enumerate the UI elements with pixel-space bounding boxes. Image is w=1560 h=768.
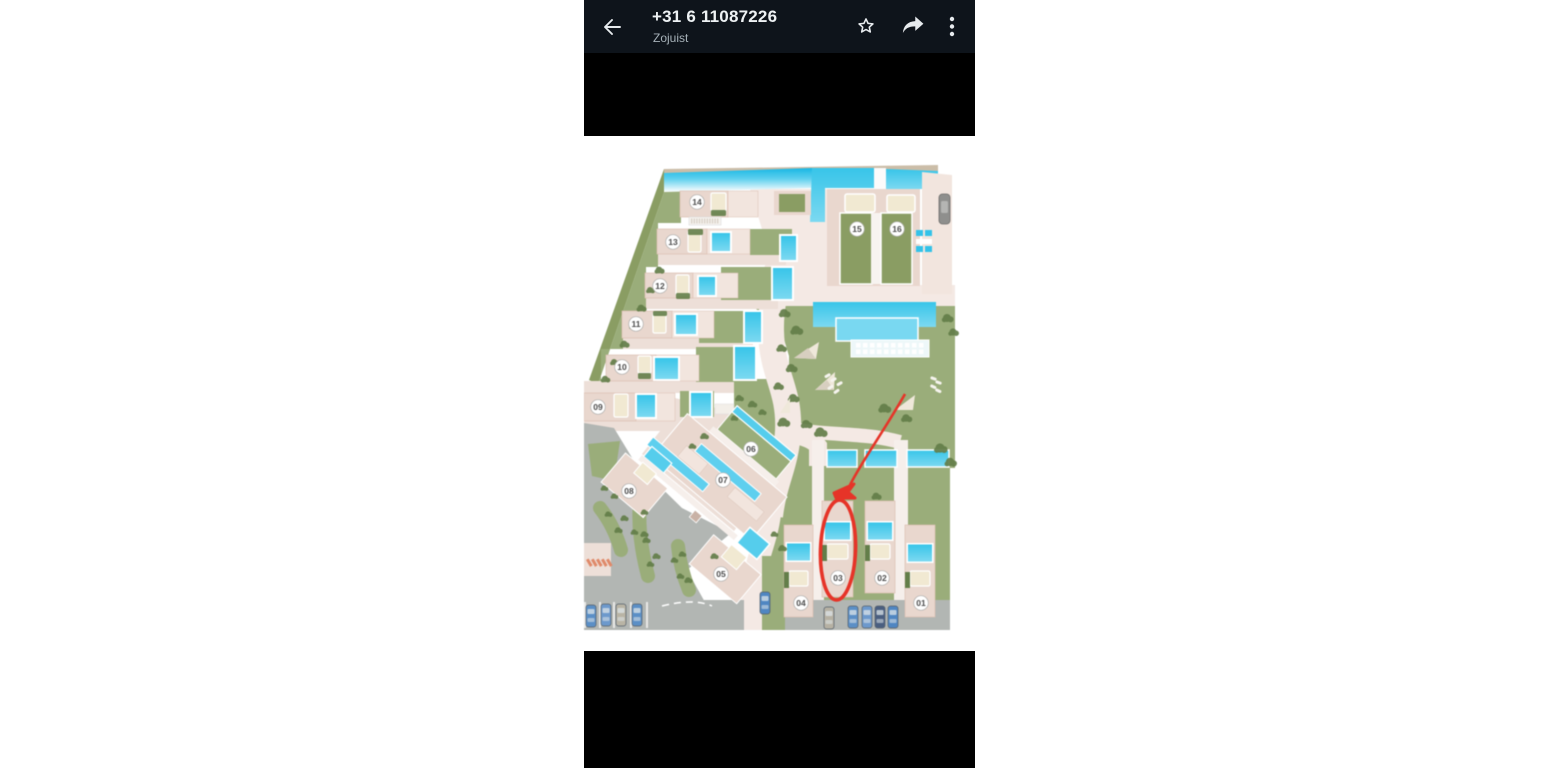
svg-text:10: 10 (617, 362, 627, 372)
svg-text:02: 02 (877, 573, 887, 583)
svg-text:16: 16 (892, 224, 902, 234)
svg-text:07: 07 (718, 475, 728, 485)
svg-text:15: 15 (852, 224, 862, 234)
svg-text:06: 06 (746, 444, 756, 454)
svg-text:04: 04 (796, 598, 806, 608)
svg-text:03: 03 (833, 573, 843, 583)
svg-text:08: 08 (624, 486, 634, 496)
svg-text:01: 01 (916, 598, 926, 608)
svg-text:14: 14 (692, 197, 702, 207)
svg-text:05: 05 (716, 569, 726, 579)
svg-text:09: 09 (593, 402, 603, 412)
svg-text:12: 12 (655, 281, 665, 291)
svg-text:11: 11 (632, 319, 641, 329)
svg-text:13: 13 (668, 237, 678, 247)
